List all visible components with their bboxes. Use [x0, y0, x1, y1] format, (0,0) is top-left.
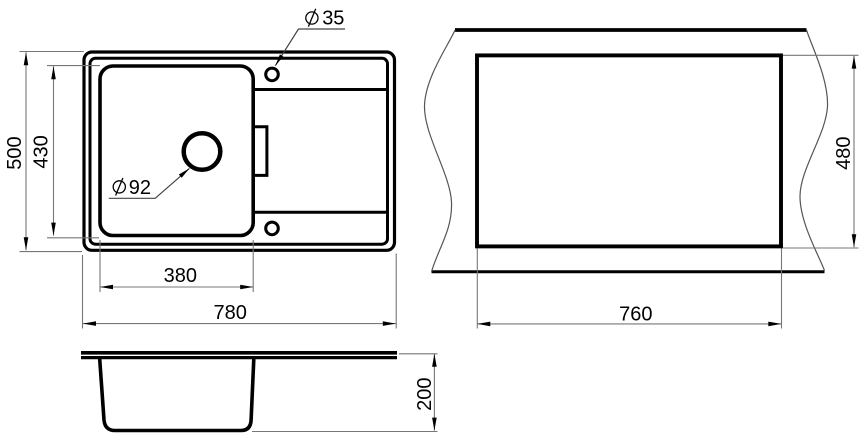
svg-text:430: 430 — [31, 135, 53, 168]
svg-text:380: 380 — [164, 265, 197, 287]
svg-text:500: 500 — [4, 136, 26, 169]
svg-text:780: 780 — [214, 302, 247, 324]
svg-text:480: 480 — [833, 137, 855, 170]
svg-text:760: 760 — [619, 303, 652, 325]
svg-text:92: 92 — [129, 177, 151, 199]
svg-text:200: 200 — [414, 378, 436, 411]
svg-text:35: 35 — [322, 8, 344, 30]
